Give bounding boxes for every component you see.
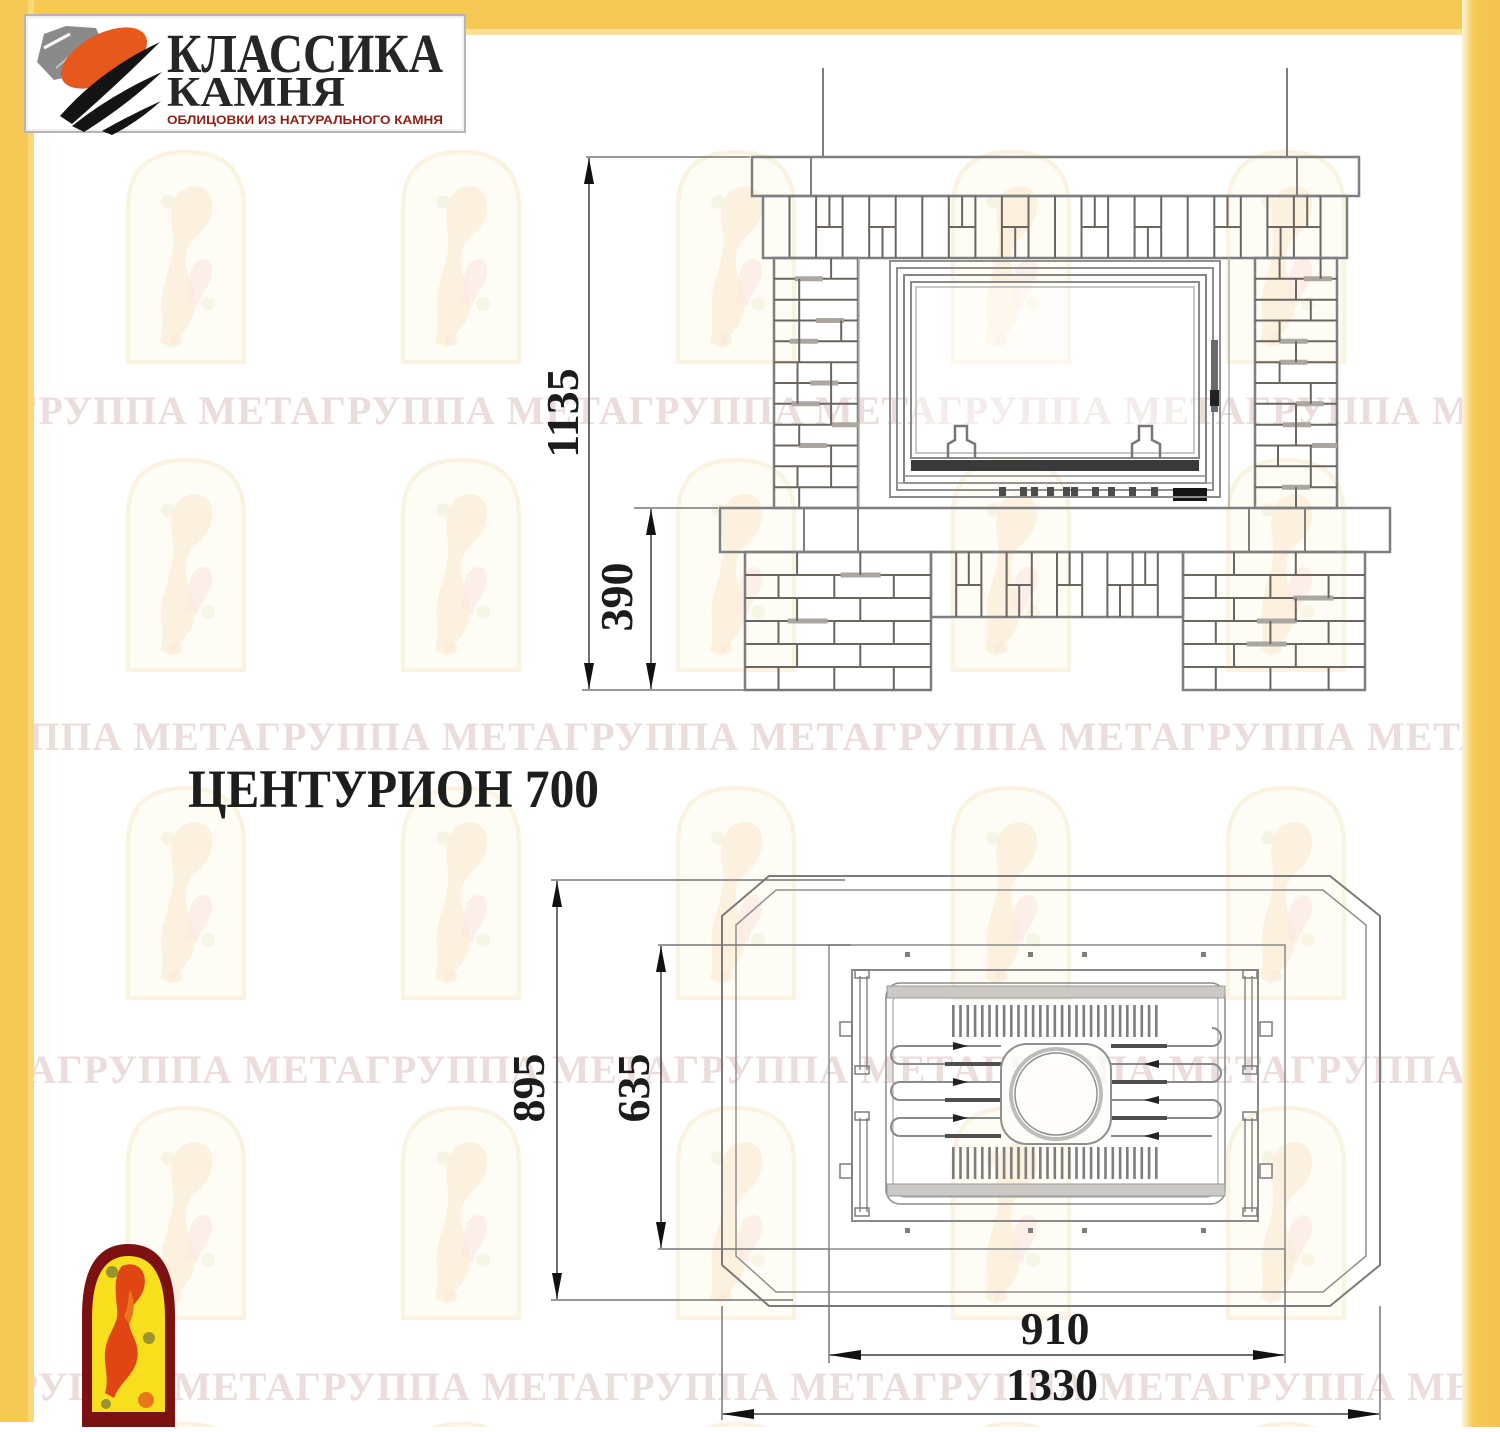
svg-text:910: 910 xyxy=(1021,1303,1090,1354)
svg-text:МЕТАГРУППА МЕТАГРУППА МЕТАГРУП: МЕТАГРУППА МЕТАГРУППА МЕТАГРУППА МЕТАГРУ… xyxy=(0,1364,1500,1409)
svg-text:895: 895 xyxy=(503,1054,554,1123)
svg-text:КАМНЯ: КАМНЯ xyxy=(167,70,345,116)
svg-text:390: 390 xyxy=(591,563,642,632)
svg-text:ЦЕНТУРИОН 700: ЦЕНТУРИОН 700 xyxy=(188,759,599,819)
svg-text:1330: 1330 xyxy=(1006,1359,1098,1410)
svg-text:МЕТАГРУППА МЕТАГРУППА МЕТАГРУП: МЕТАГРУППА МЕТАГРУППА МЕТАГРУППА МЕТАГРУ… xyxy=(0,1047,1500,1092)
svg-text:МЕТАГРУППА МЕТАГРУППА МЕТАГРУП: МЕТАГРУППА МЕТАГРУППА МЕТАГРУППА МЕТАГРУ… xyxy=(0,714,1500,759)
svg-text:ОБЛИЦОВКИ ИЗ НАТУРАЛЬНОГО КАМН: ОБЛИЦОВКИ ИЗ НАТУРАЛЬНОГО КАМНЯ xyxy=(167,113,443,127)
svg-text:1135: 1135 xyxy=(537,368,588,457)
svg-text:635: 635 xyxy=(608,1054,659,1123)
svg-text:МЕТАГРУППА МЕТАГРУППА МЕТАГРУП: МЕТАГРУППА МЕТАГРУППА МЕТАГРУППА МЕТАГРУ… xyxy=(0,388,1500,433)
